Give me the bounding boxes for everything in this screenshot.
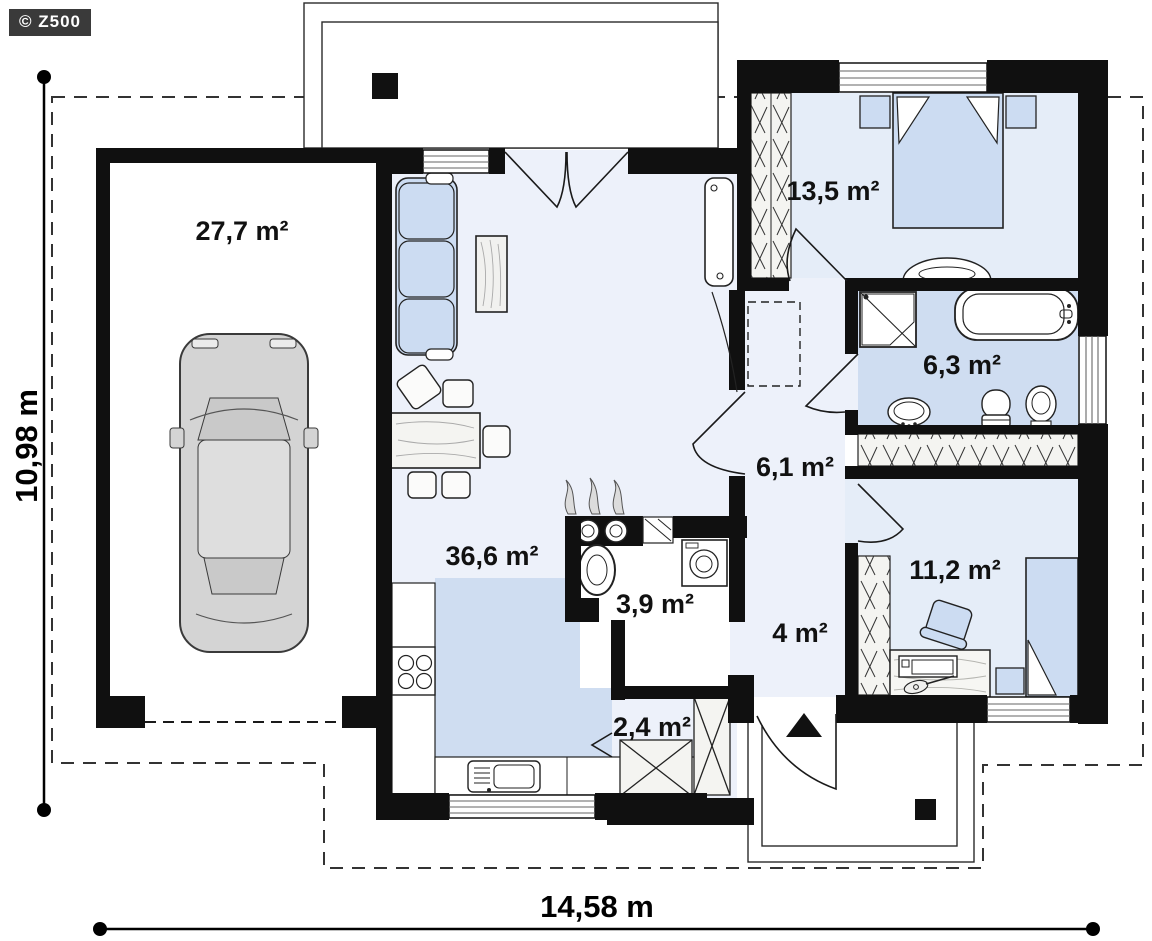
nightstand-bedroom2 bbox=[996, 668, 1024, 694]
sofa bbox=[396, 173, 457, 360]
room-label-bedroom: 13,5 m² bbox=[786, 176, 879, 206]
bidet bbox=[1026, 386, 1056, 428]
room-label-hall: 6,1 m² bbox=[756, 452, 834, 482]
bedroom-bed bbox=[893, 93, 1003, 228]
kitchen-window bbox=[449, 795, 595, 818]
car bbox=[170, 334, 318, 652]
hall-wardrobe bbox=[858, 434, 1078, 466]
room-label-utility: 3,9 m² bbox=[616, 589, 694, 619]
room-label-garage: 27,7 m² bbox=[195, 216, 288, 246]
room-label-storage: 2,4 m² bbox=[613, 712, 691, 742]
shower bbox=[860, 292, 916, 347]
coffee-table bbox=[476, 236, 507, 312]
bathtub bbox=[955, 288, 1078, 340]
room-label-bathroom: 6,3 m² bbox=[923, 350, 1001, 380]
washing-machine bbox=[682, 540, 727, 586]
living-window bbox=[423, 150, 489, 173]
desk bbox=[890, 650, 990, 698]
single-bed bbox=[1026, 558, 1078, 697]
nightstand-right bbox=[1006, 96, 1036, 128]
toilet bbox=[982, 390, 1010, 427]
room-label-bedroom2: 11,2 m² bbox=[909, 555, 1001, 585]
bedroom2-wardrobe bbox=[858, 556, 890, 695]
bedroom2-window bbox=[987, 697, 1070, 722]
nightstand-left bbox=[860, 96, 890, 128]
porch-column bbox=[915, 799, 936, 820]
terrace bbox=[304, 3, 718, 148]
bathroom-window bbox=[1079, 336, 1106, 424]
room-label-living: 36,6 m² bbox=[445, 541, 538, 571]
bedroom-wardrobe bbox=[751, 93, 791, 278]
bedroom-window bbox=[839, 63, 987, 92]
terrace-column bbox=[372, 73, 398, 99]
room-label-entry: 4 m² bbox=[772, 618, 828, 648]
dimension-width: 14,58 m bbox=[540, 889, 654, 924]
dimension-height: 10,98 m bbox=[9, 389, 44, 503]
floor-plan-drawing: 27,7 m² 36,6 m² 13,5 m² 6,3 m² 6,1 m² 3,… bbox=[0, 0, 1152, 941]
kitchen-sink bbox=[468, 761, 540, 792]
floor-plan-page: 27,7 m² 36,6 m² 13,5 m² 6,3 m² 6,1 m² 3,… bbox=[0, 0, 1152, 941]
brand-badge: © Z500 bbox=[9, 9, 91, 36]
